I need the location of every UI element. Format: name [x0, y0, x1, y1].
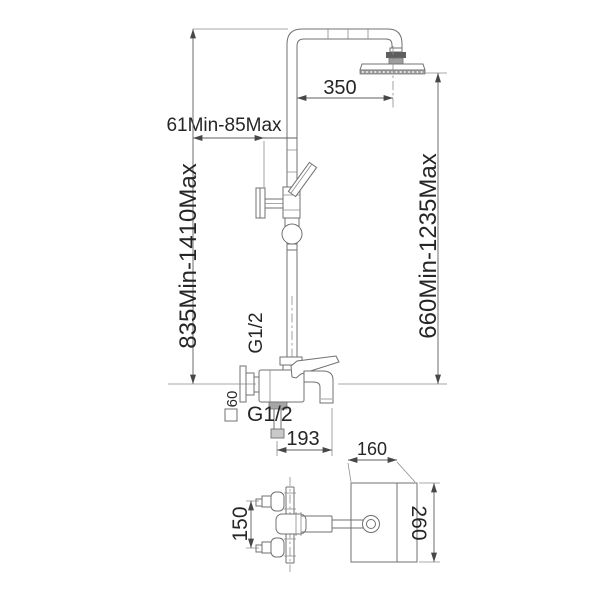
dim-plate-depth: 260: [407, 483, 440, 562]
head-connector-top: [390, 48, 402, 52]
ball-joint: [282, 218, 302, 250]
front-view: 350 61Min-85Max 835Min-1410Max 660Min-12…: [166, 29, 447, 456]
inlet-bottom-flange: [271, 538, 284, 557]
pipe-joint-ticks: [287, 29, 368, 172]
head-connector-nut: [389, 58, 403, 64]
dim-overall-height-label: 835Min-1410Max: [175, 163, 202, 348]
ball-joint-lower-nut: [287, 244, 297, 250]
mixer-top-body: [276, 514, 306, 534]
dim-inlet-spacing-label: 150: [229, 506, 252, 541]
mixer-spout: [304, 371, 333, 403]
mixer-top-view: [276, 512, 380, 536]
dim-spout-reach-label: 193: [286, 428, 319, 450]
square-symbol-icon: [225, 409, 237, 421]
inlet-top-nut: [262, 496, 271, 507]
spout-arm: [332, 520, 364, 528]
inlet-top-flange: [271, 492, 284, 511]
dim-arm-reach: 350: [297, 77, 393, 99]
dim-plate-width-label: 160: [357, 439, 387, 459]
dim-arm-reach-label: 350: [323, 77, 356, 99]
inlet-bottom-nut: [262, 542, 271, 553]
dim-holder-offset-label: 61Min-85Max: [166, 115, 282, 136]
inlet-bottom-tip: [256, 545, 262, 552]
inlet-top-tip: [256, 499, 262, 506]
dim-inlet-spacing: 150: [229, 501, 259, 548]
hand-shower-holder: [256, 162, 317, 218]
head-connector-band: [386, 52, 406, 58]
top-view: 160 260 150: [229, 439, 440, 572]
dim-head-height: 660Min-1235Max: [415, 73, 447, 384]
dim-plate-width-ext-left: [348, 463, 351, 482]
wall-plate-size-label: 60: [224, 391, 241, 421]
drawing-page: 350 61Min-85Max 835Min-1410Max 660Min-12…: [0, 0, 600, 600]
wall-plate-size-text: 60: [224, 391, 241, 408]
dim-plate-depth-label: 260: [407, 505, 430, 540]
riser-thread-label: G1/2: [246, 312, 267, 353]
inlet-fitting-top: [256, 492, 284, 511]
outlet-thread-label: G1/2: [247, 403, 293, 426]
arm-escutcheon-inner: [367, 520, 376, 529]
inlet-fitting-bottom: [256, 538, 284, 557]
dim-head-height-label: 660Min-1235Max: [415, 153, 442, 338]
overhead-shower: [360, 46, 425, 108]
dim-plate-width-ext-right: [397, 462, 415, 482]
ball-joint-ball: [282, 224, 302, 244]
dim-plate-width: 160: [348, 439, 415, 482]
outlet-end-fitting: [271, 429, 284, 438]
shower-head-disc: [360, 64, 425, 70]
shower-technical-drawing: 350 61Min-85Max 835Min-1410Max 660Min-12…: [0, 0, 600, 600]
hand-shower-handle: [288, 162, 316, 196]
wall-nut-2: [254, 377, 259, 392]
